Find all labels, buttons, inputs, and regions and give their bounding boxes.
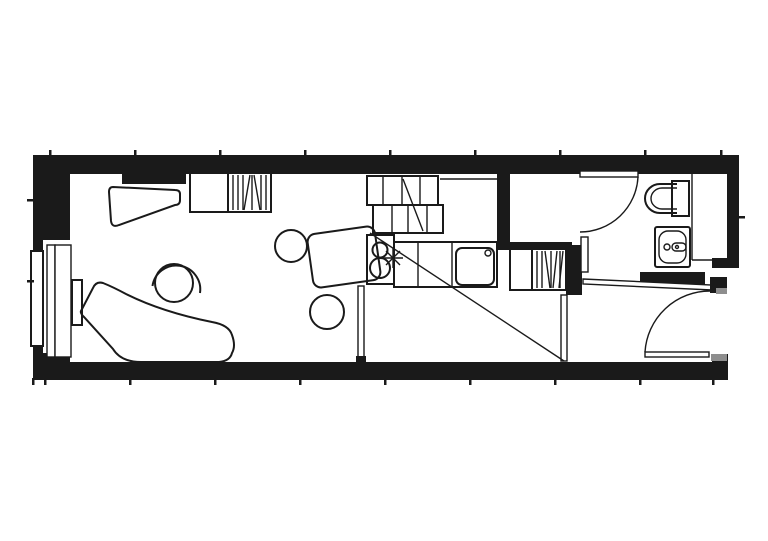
niche-pier xyxy=(497,173,510,250)
right-wall-step xyxy=(712,258,739,268)
toilet-cistern xyxy=(672,181,689,216)
window-assembly xyxy=(31,245,82,357)
washbasin-tap-dot xyxy=(664,244,670,250)
hatch-lines xyxy=(233,175,266,210)
window-inner-frame xyxy=(47,245,55,357)
wardrobe-left-hatched xyxy=(228,173,271,212)
wardrobe-right xyxy=(510,249,532,290)
entrance-door-swing-arc xyxy=(645,291,710,352)
bath-partition-column xyxy=(566,245,582,295)
partition-left-foot xyxy=(356,356,366,362)
long-diagonal-line xyxy=(370,233,564,361)
washbasin-tap-center xyxy=(676,246,679,249)
sink-basin xyxy=(456,248,494,285)
floor-plan-page xyxy=(0,0,768,541)
toilet xyxy=(645,181,689,216)
wardrobe-right-hatched xyxy=(532,249,566,290)
round-table xyxy=(153,264,201,302)
wardrobe-left xyxy=(190,173,228,212)
entry-jamb-lower-frame xyxy=(711,354,727,361)
wall-pier-above-desk xyxy=(122,173,186,184)
floor-plan-drawing xyxy=(0,0,768,541)
washbasin xyxy=(655,227,690,267)
window-bench xyxy=(72,280,82,325)
bathroom-door-swing-arc xyxy=(580,177,638,232)
hatch-lines xyxy=(537,251,563,288)
window-sill-board xyxy=(55,245,71,357)
desk xyxy=(109,187,180,226)
right-wall-upper xyxy=(727,155,739,258)
left-wall-upper xyxy=(33,155,70,240)
stairs xyxy=(367,176,443,233)
living-furniture xyxy=(81,173,271,362)
kitchen xyxy=(275,226,497,329)
left-wall-sill-strip xyxy=(33,238,43,252)
bathroom-door-leaf xyxy=(580,171,638,177)
bathroom xyxy=(580,171,712,267)
wardrobe-right-group xyxy=(510,249,566,290)
stair-upper-treads xyxy=(383,176,420,205)
bottom-wall xyxy=(33,362,728,380)
sliding-partition-right xyxy=(561,295,567,361)
stool-2 xyxy=(310,295,344,329)
toilet-bowl-inner xyxy=(651,188,677,209)
sliding-partition-left xyxy=(358,286,364,361)
sink-drain xyxy=(485,250,491,256)
entrance-door-leaf xyxy=(645,352,709,357)
bath-wall-stub xyxy=(581,237,588,272)
window-outer-frame xyxy=(31,251,43,346)
burner-small xyxy=(373,243,388,258)
entry-jamb-upper-frame xyxy=(716,288,727,294)
stool-1 xyxy=(275,230,307,262)
entrance xyxy=(645,277,727,361)
chaise-longue xyxy=(81,283,234,362)
